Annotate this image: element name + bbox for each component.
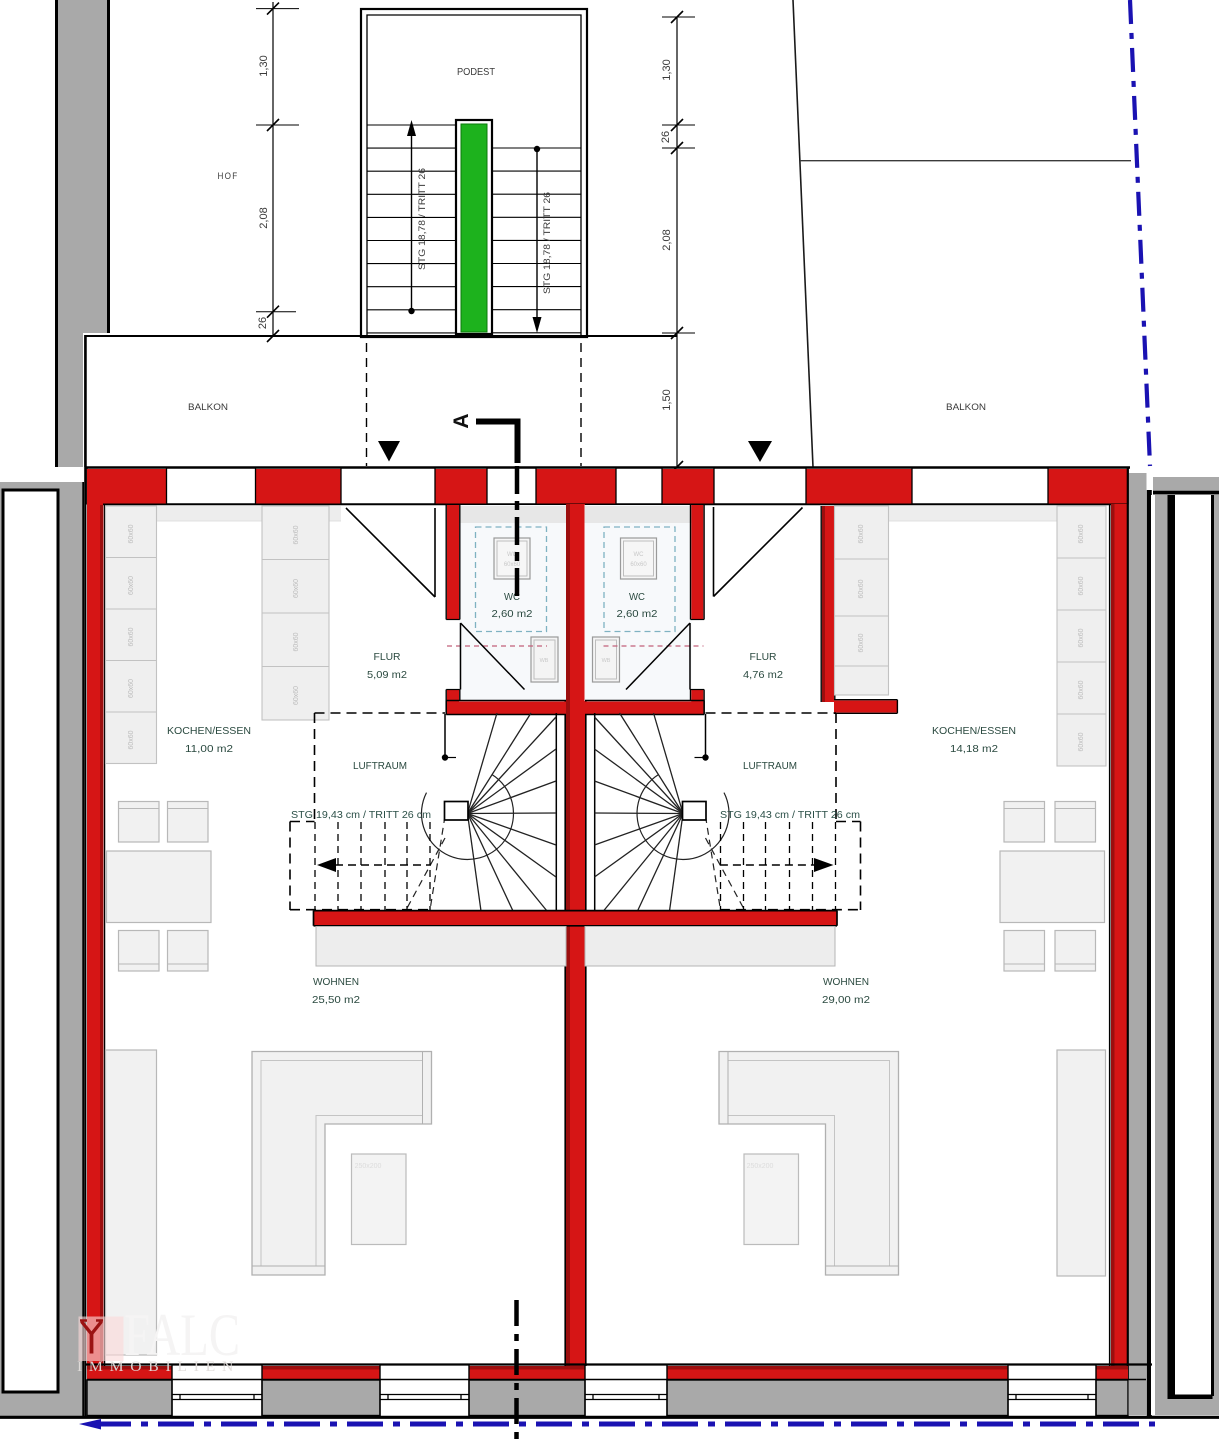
svg-text:26: 26 — [257, 317, 269, 329]
svg-text:5,09 m2: 5,09 m2 — [367, 669, 407, 681]
svg-text:A: A — [450, 413, 473, 428]
svg-text:STG 18,78 / TRITT 26: STG 18,78 / TRITT 26 — [542, 192, 553, 294]
svg-text:60x60: 60x60 — [293, 632, 300, 651]
svg-text:KOCHEN/ESSEN: KOCHEN/ESSEN — [167, 725, 251, 737]
svg-text:60x60: 60x60 — [1078, 628, 1085, 647]
svg-text:2,60 m2: 2,60 m2 — [617, 608, 658, 620]
svg-text:26: 26 — [660, 131, 672, 143]
svg-text:WC: WC — [634, 552, 645, 558]
svg-text:BALKON: BALKON — [946, 402, 986, 413]
svg-text:BALKON: BALKON — [188, 402, 228, 413]
svg-text:FLUR: FLUR — [750, 651, 777, 663]
svg-text:60x60: 60x60 — [1078, 576, 1085, 595]
svg-text:14,18 m2: 14,18 m2 — [950, 743, 998, 755]
svg-text:PODEST: PODEST — [457, 67, 495, 78]
svg-text:STG 19,43 cm / TRITT 26 cm: STG 19,43 cm / TRITT 26 cm — [291, 810, 431, 821]
svg-text:11,00 m2: 11,00 m2 — [185, 743, 233, 755]
svg-text:WB: WB — [540, 658, 549, 664]
svg-text:250x200: 250x200 — [355, 1163, 382, 1170]
svg-text:60x60: 60x60 — [128, 627, 135, 646]
svg-text:60x60: 60x60 — [128, 576, 135, 595]
svg-text:60x60: 60x60 — [293, 686, 300, 705]
svg-text:60x60: 60x60 — [128, 679, 135, 698]
svg-text:60x60: 60x60 — [293, 525, 300, 544]
svg-text:60x60: 60x60 — [128, 524, 135, 543]
svg-text:WB: WB — [602, 658, 611, 664]
svg-text:60x60: 60x60 — [858, 579, 865, 598]
svg-text:WC: WC — [629, 591, 645, 603]
svg-text:2,08: 2,08 — [258, 207, 270, 228]
svg-text:STG 19,43 cm / TRITT 26 cm: STG 19,43 cm / TRITT 26 cm — [720, 810, 860, 821]
svg-text:60x60: 60x60 — [293, 579, 300, 598]
svg-text:60x60: 60x60 — [1078, 732, 1085, 751]
svg-text:2,08: 2,08 — [661, 229, 673, 250]
svg-text:WOHNEN: WOHNEN — [313, 976, 359, 988]
svg-text:60x60: 60x60 — [128, 730, 135, 749]
svg-text:60x60: 60x60 — [1078, 524, 1085, 543]
svg-text:4,76 m2: 4,76 m2 — [743, 669, 783, 681]
svg-text:60x60: 60x60 — [630, 562, 647, 568]
svg-text:WOHNEN: WOHNEN — [823, 976, 869, 988]
svg-text:FLUR: FLUR — [374, 651, 401, 663]
svg-text:60x60: 60x60 — [858, 633, 865, 652]
svg-text:HOF: HOF — [218, 171, 239, 182]
svg-text:60x60: 60x60 — [1078, 680, 1085, 699]
svg-text:LUFTRAUM: LUFTRAUM — [353, 760, 407, 772]
svg-text:1,50: 1,50 — [661, 389, 673, 410]
svg-text:60x60: 60x60 — [858, 524, 865, 543]
svg-text:LUFTRAUM: LUFTRAUM — [743, 760, 797, 772]
svg-text:25,50 m2: 25,50 m2 — [312, 994, 360, 1006]
svg-text:STG 18,78 / TRITT 26: STG 18,78 / TRITT 26 — [417, 168, 428, 270]
svg-text:250x200: 250x200 — [747, 1163, 774, 1170]
svg-text:60x60: 60x60 — [504, 562, 521, 568]
svg-text:IMMOBILIEN: IMMOBILIEN — [77, 1359, 240, 1375]
svg-text:KOCHEN/ESSEN: KOCHEN/ESSEN — [932, 725, 1016, 737]
svg-text:1,30: 1,30 — [661, 59, 673, 80]
svg-text:29,00 m2: 29,00 m2 — [822, 994, 870, 1006]
svg-text:1,30: 1,30 — [258, 55, 270, 76]
svg-text:2,60 m2: 2,60 m2 — [492, 608, 533, 620]
